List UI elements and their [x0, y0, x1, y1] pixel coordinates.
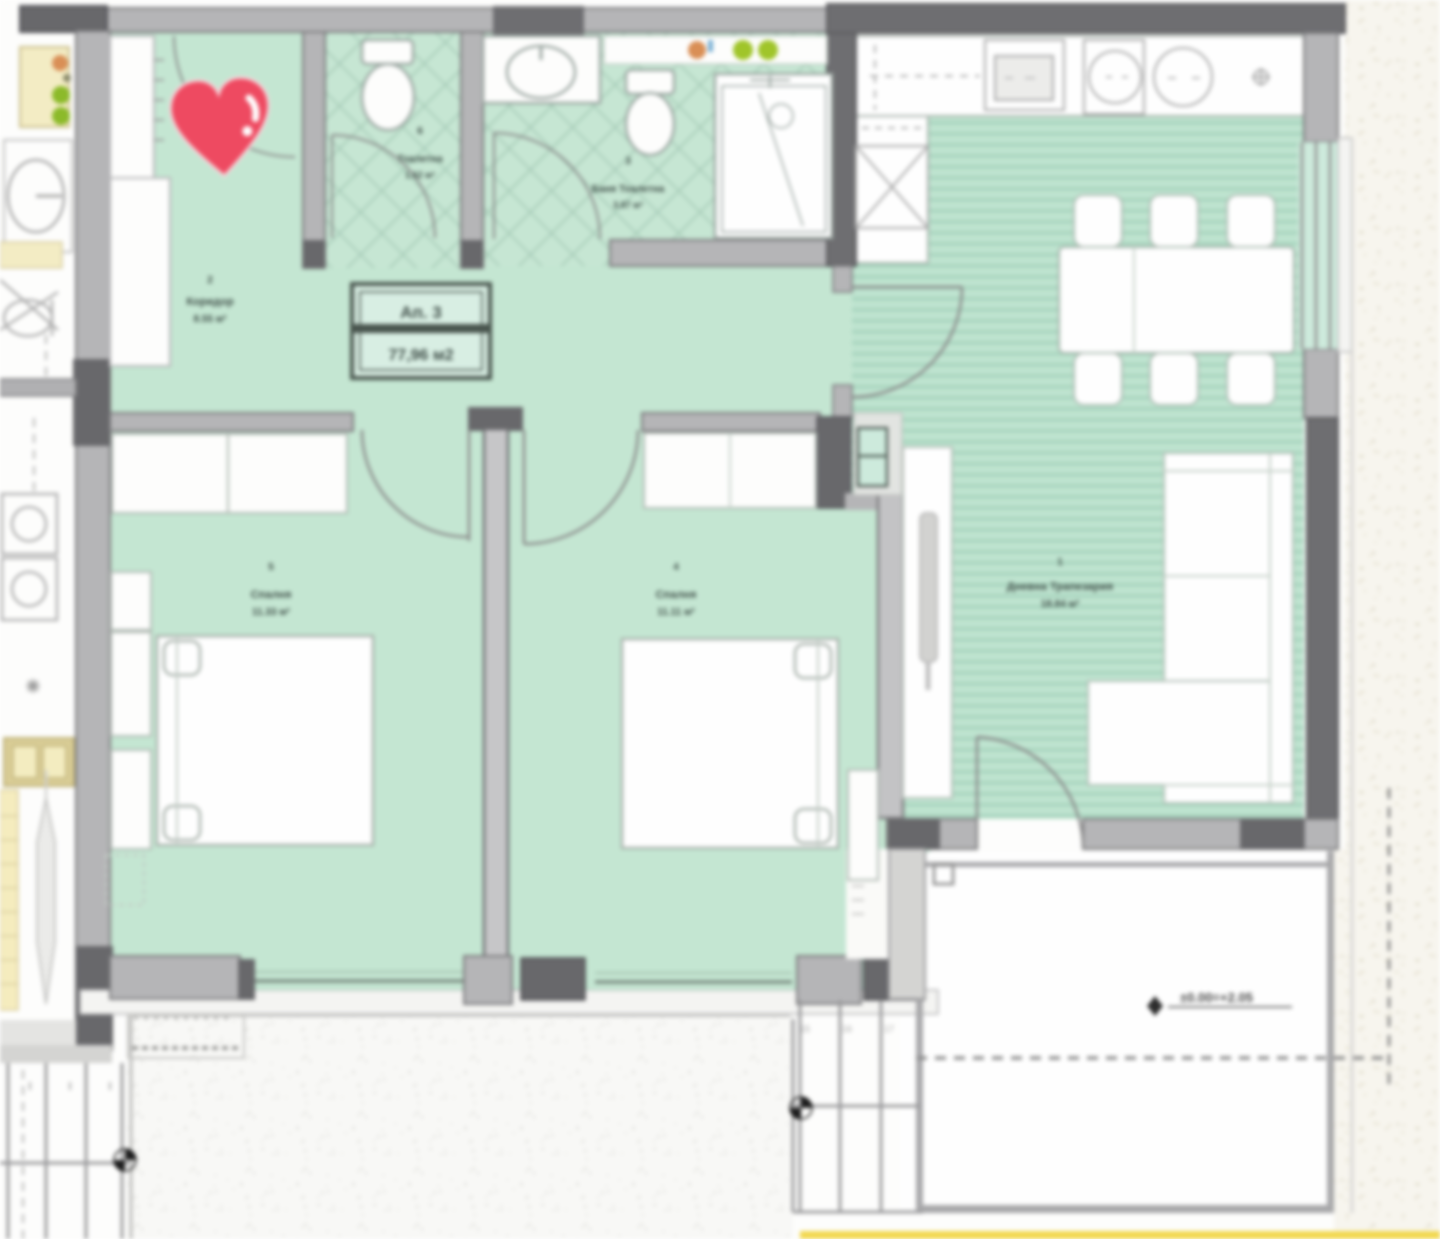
svg-text:±0.00=+2.05: ±0.00=+2.05	[1180, 990, 1253, 1005]
svg-text:17: 17	[884, 1024, 894, 1034]
svg-text:3: 3	[625, 156, 631, 167]
svg-text:Коридор: Коридор	[186, 296, 234, 308]
svg-text:3.87 м²: 3.87 м²	[613, 200, 643, 210]
svg-text:11.11 м²: 11.11 м²	[657, 607, 695, 618]
svg-text:6: 6	[417, 126, 423, 137]
svg-text:15: 15	[800, 1024, 810, 1034]
svg-text:Спалня: Спалня	[656, 589, 697, 601]
svg-text:Тоалетна: Тоалетна	[397, 154, 443, 165]
svg-text:Баня Тоалетна: Баня Тоалетна	[592, 184, 665, 195]
svg-text:Спалня: Спалня	[251, 589, 292, 601]
svg-text:Ап. 3: Ап. 3	[400, 303, 441, 322]
svg-text:77,96 м2: 77,96 м2	[388, 347, 453, 364]
svg-text:Дневна Трапезария: Дневна Трапезария	[1007, 581, 1113, 593]
svg-text:18.84 м²: 18.84 м²	[1041, 599, 1080, 610]
svg-text:5: 5	[268, 562, 274, 573]
svg-text:16: 16	[842, 1024, 852, 1034]
svg-text:2: 2	[207, 275, 213, 286]
svg-text:1: 1	[1057, 557, 1063, 568]
svg-text:1.62 м²: 1.62 м²	[405, 170, 435, 180]
svg-text:4: 4	[673, 562, 679, 573]
svg-text:11.33 м²: 11.33 м²	[252, 607, 291, 618]
svg-text:8.55 м²: 8.55 м²	[194, 314, 228, 325]
